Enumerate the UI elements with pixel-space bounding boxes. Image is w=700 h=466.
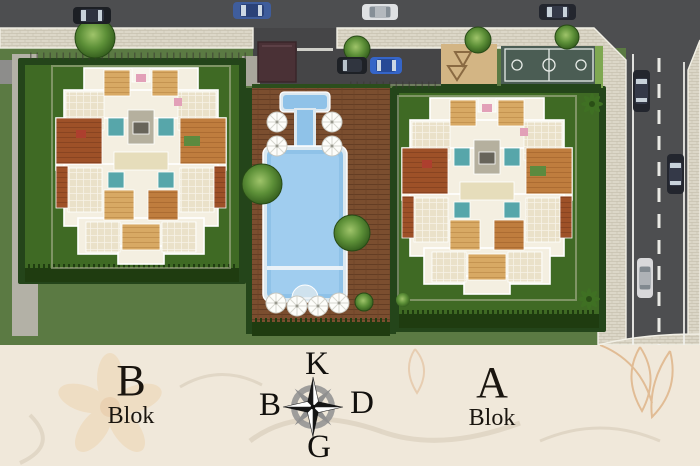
car bbox=[233, 2, 271, 19]
building-a bbox=[402, 98, 572, 294]
playground bbox=[441, 44, 497, 90]
site-plan: B Blok A Blok K G B D bbox=[0, 0, 700, 466]
blok-b-word: Blok bbox=[56, 403, 206, 429]
car bbox=[337, 57, 367, 74]
car bbox=[370, 57, 402, 74]
label-blok-b: B Blok bbox=[56, 361, 206, 429]
blok-a-letter: A bbox=[417, 363, 567, 403]
entrance-canopy bbox=[258, 42, 296, 82]
car bbox=[539, 4, 576, 20]
label-blok-a: A Blok bbox=[417, 363, 567, 431]
blok-a-word: Blok bbox=[417, 405, 567, 431]
site-map bbox=[0, 0, 700, 345]
car bbox=[637, 258, 653, 298]
legend-band: B Blok A Blok K G B D bbox=[0, 345, 700, 466]
blok-b-letter: B bbox=[56, 361, 206, 401]
building-b bbox=[56, 68, 226, 264]
compass-east-label: D bbox=[342, 385, 382, 421]
compass-north-label: K bbox=[297, 346, 337, 382]
compass-south-label: G bbox=[299, 429, 339, 465]
compass-west-label: B bbox=[250, 387, 290, 423]
car bbox=[73, 7, 111, 24]
basketball-court bbox=[501, 46, 603, 91]
car bbox=[362, 4, 398, 20]
car bbox=[633, 70, 650, 112]
car bbox=[667, 154, 684, 194]
